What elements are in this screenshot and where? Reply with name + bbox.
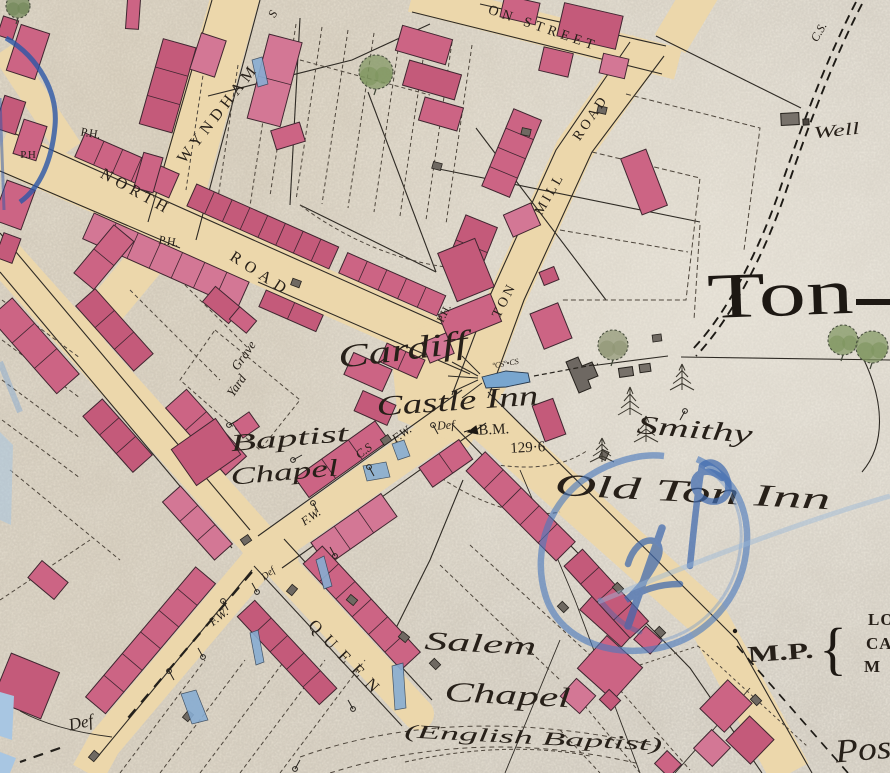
- svg-text:Chapel: Chapel: [444, 677, 572, 715]
- svg-text:Ton: Ton: [706, 256, 854, 332]
- svg-text:LO: LO: [868, 610, 890, 629]
- svg-text:M: M: [864, 657, 880, 676]
- svg-text:Def: Def: [436, 417, 457, 432]
- svg-text:129·6: 129·6: [510, 439, 546, 457]
- svg-text:Pos: Pos: [833, 730, 890, 771]
- svg-text:Salem: Salem: [424, 626, 537, 661]
- svg-text:M.P.: M.P.: [747, 638, 815, 668]
- svg-text:P.H: P.H: [20, 149, 36, 161]
- svg-text:{: {: [819, 616, 847, 681]
- svg-text:CA: CA: [866, 634, 890, 653]
- svg-text:B.M.: B.M.: [478, 421, 510, 439]
